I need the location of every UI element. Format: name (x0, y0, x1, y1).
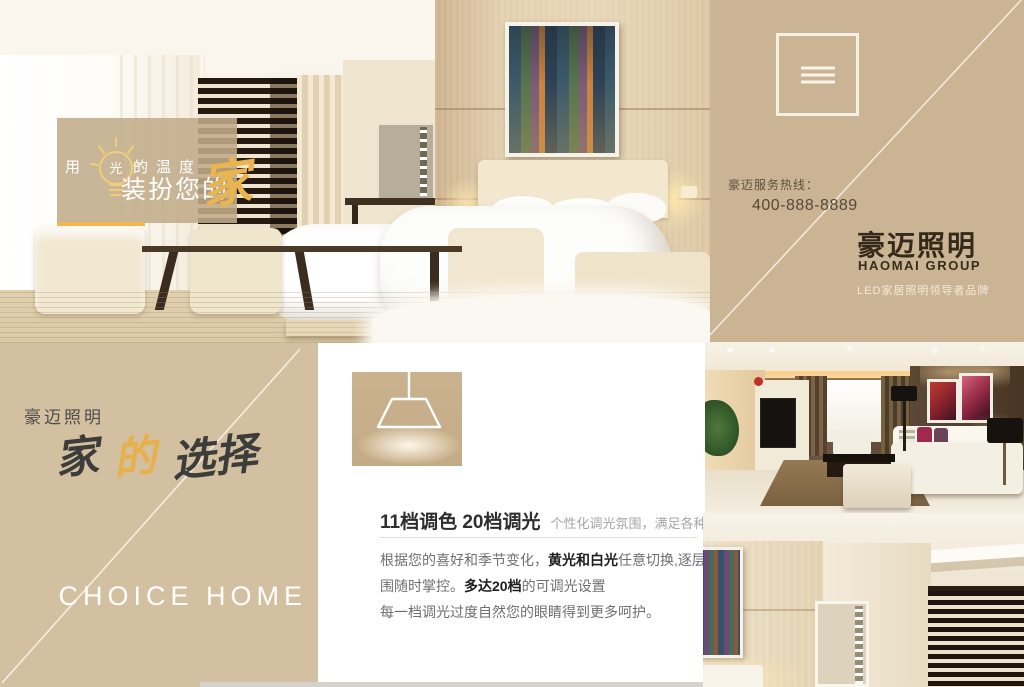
menu-button[interactable] (776, 33, 859, 116)
hero-gold-underline (57, 222, 145, 226)
feature-panel: 11档调色 20档调光个性化调光氛围，满足各种喜好 根据您的喜好和季节变化，黄光… (318, 343, 705, 687)
hero-text-prefix: 用 (65, 156, 80, 177)
furniture-edge (703, 665, 763, 687)
hotline-number: 400-888-8889 (752, 197, 858, 215)
choice-panel: 豪迈照明 家 的 选择 CHOICE HOME (0, 343, 318, 687)
blinds-frame (928, 586, 1024, 591)
art-frame (927, 379, 959, 423)
floor-lamp-pole (1003, 443, 1006, 485)
armchair (833, 430, 871, 456)
ceiling-spotlights (727, 348, 733, 352)
landing-page: 用 光 的温度 装扮您的 家 (0, 0, 1024, 687)
wall-painting (703, 547, 743, 658)
diagonal-line (0, 343, 318, 687)
brand-tagline: LED家居照明领导者品牌 (857, 282, 989, 298)
coffee-table (823, 454, 895, 462)
choice-english-title: CHOICE HOME (58, 581, 307, 612)
wall-painting (505, 22, 619, 157)
hotline-label: 豪迈服务热线： (728, 176, 819, 193)
pendant-lamp-image (352, 372, 462, 466)
living-room-photo (705, 342, 1024, 513)
window-blinds (928, 591, 1024, 687)
brand-panel: 豪迈服务热线： 400-888-8889 豪迈照明 HAOMAI GROUP L… (710, 0, 1024, 343)
wall-sconce (681, 186, 697, 198)
mirror-lights (855, 606, 863, 684)
choice-calligraphy: 家 的 选择 (55, 423, 257, 485)
torch-lamp (891, 386, 917, 401)
hamburger-icon (801, 62, 835, 87)
calligraphy-char-gold: 的 (110, 421, 159, 487)
red-flowers (754, 377, 763, 386)
tv-screen (760, 398, 796, 448)
feature-heading-strong: 11档调色 20档调光 (380, 512, 541, 533)
brand-name-en: HAOMAI GROUP (858, 258, 981, 273)
armchair (448, 228, 544, 302)
torch-lamp-pole (903, 401, 906, 451)
bedroom-photo: 用 光 的温度 装扮您的 家 (0, 0, 710, 343)
hero-home-calligraphy: 家 (196, 141, 256, 219)
white-rug (372, 296, 710, 343)
ottoman (843, 464, 911, 508)
floor-lamp-shade (987, 418, 1023, 443)
calligraphy-char: 家 (52, 421, 101, 487)
calligraphy-char: 选择 (168, 419, 260, 490)
bottom-photo-strip (200, 682, 703, 687)
pendant-lamp-icon (352, 372, 462, 466)
dotted-divider (380, 537, 698, 538)
mirror-lights (420, 127, 427, 196)
feature-heading: 11档调色 20档调光个性化调光氛围，满足各种喜好 (380, 507, 733, 534)
hero-overlay: 用 光 的温度 装扮您的 家 (57, 118, 237, 223)
bedroom-detail-photo (703, 513, 1024, 687)
